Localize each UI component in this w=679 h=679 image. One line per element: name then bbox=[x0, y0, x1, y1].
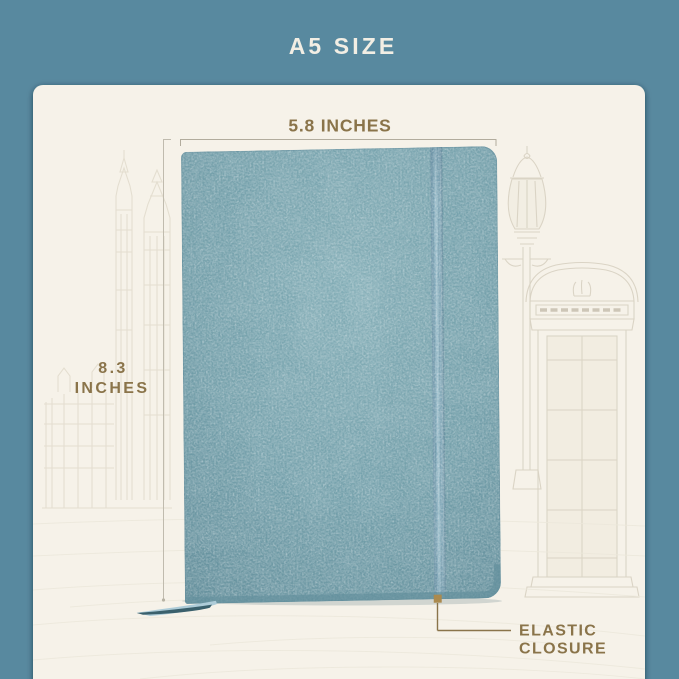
svg-text:CLOSURE: CLOSURE bbox=[519, 641, 607, 658]
svg-text:8.3: 8.3 bbox=[98, 360, 127, 377]
svg-text:INCHES: INCHES bbox=[75, 380, 150, 397]
svg-text:5.8 INCHES: 5.8 INCHES bbox=[288, 116, 391, 136]
svg-text:ELASTIC: ELASTIC bbox=[519, 623, 597, 640]
svg-text:A5 SIZE: A5 SIZE bbox=[289, 33, 398, 59]
